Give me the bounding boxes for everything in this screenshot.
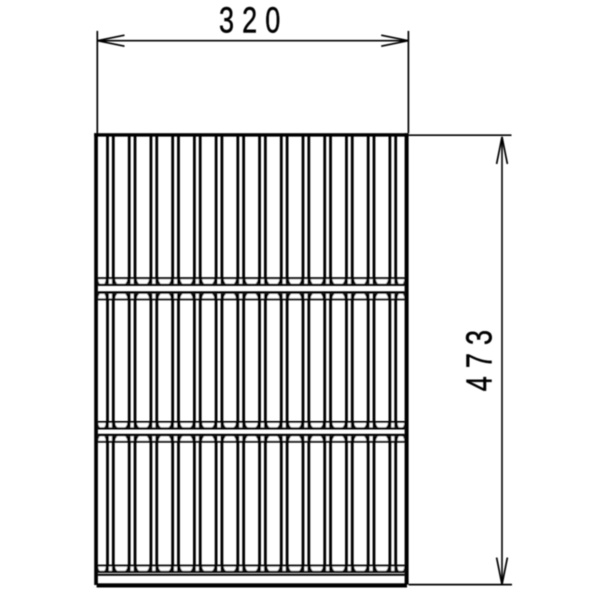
svg-text:473: 473 <box>458 322 499 391</box>
svg-text:320: 320 <box>219 0 288 41</box>
